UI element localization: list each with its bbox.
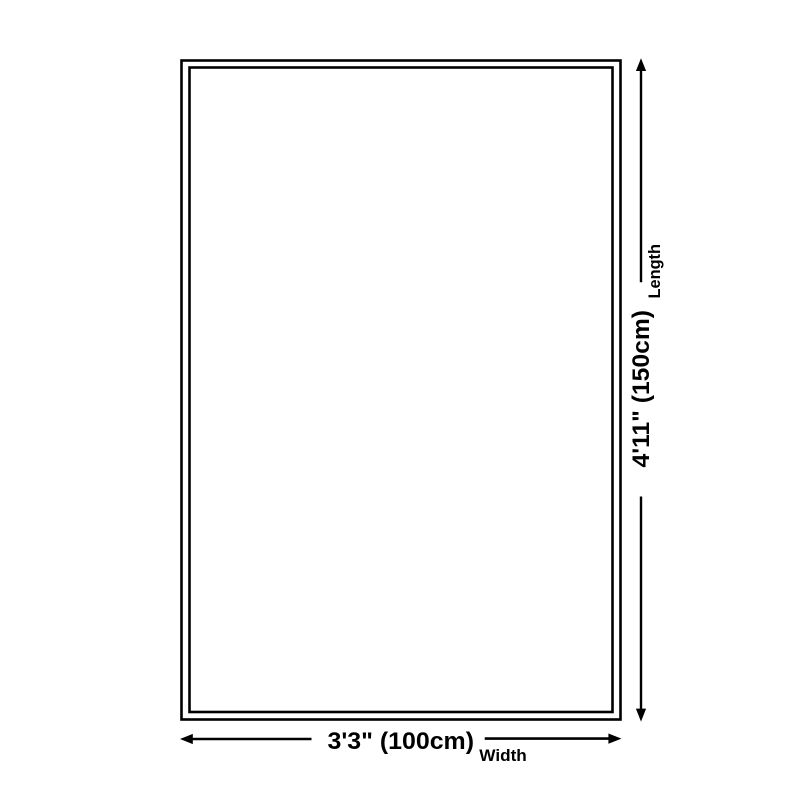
svg-text:4'11" (150cm): 4'11" (150cm)	[628, 310, 655, 468]
svg-text:3'3" (100cm): 3'3" (100cm)	[328, 728, 475, 755]
svg-text:Width: Width	[479, 747, 527, 765]
svg-text:Length: Length	[645, 244, 664, 299]
